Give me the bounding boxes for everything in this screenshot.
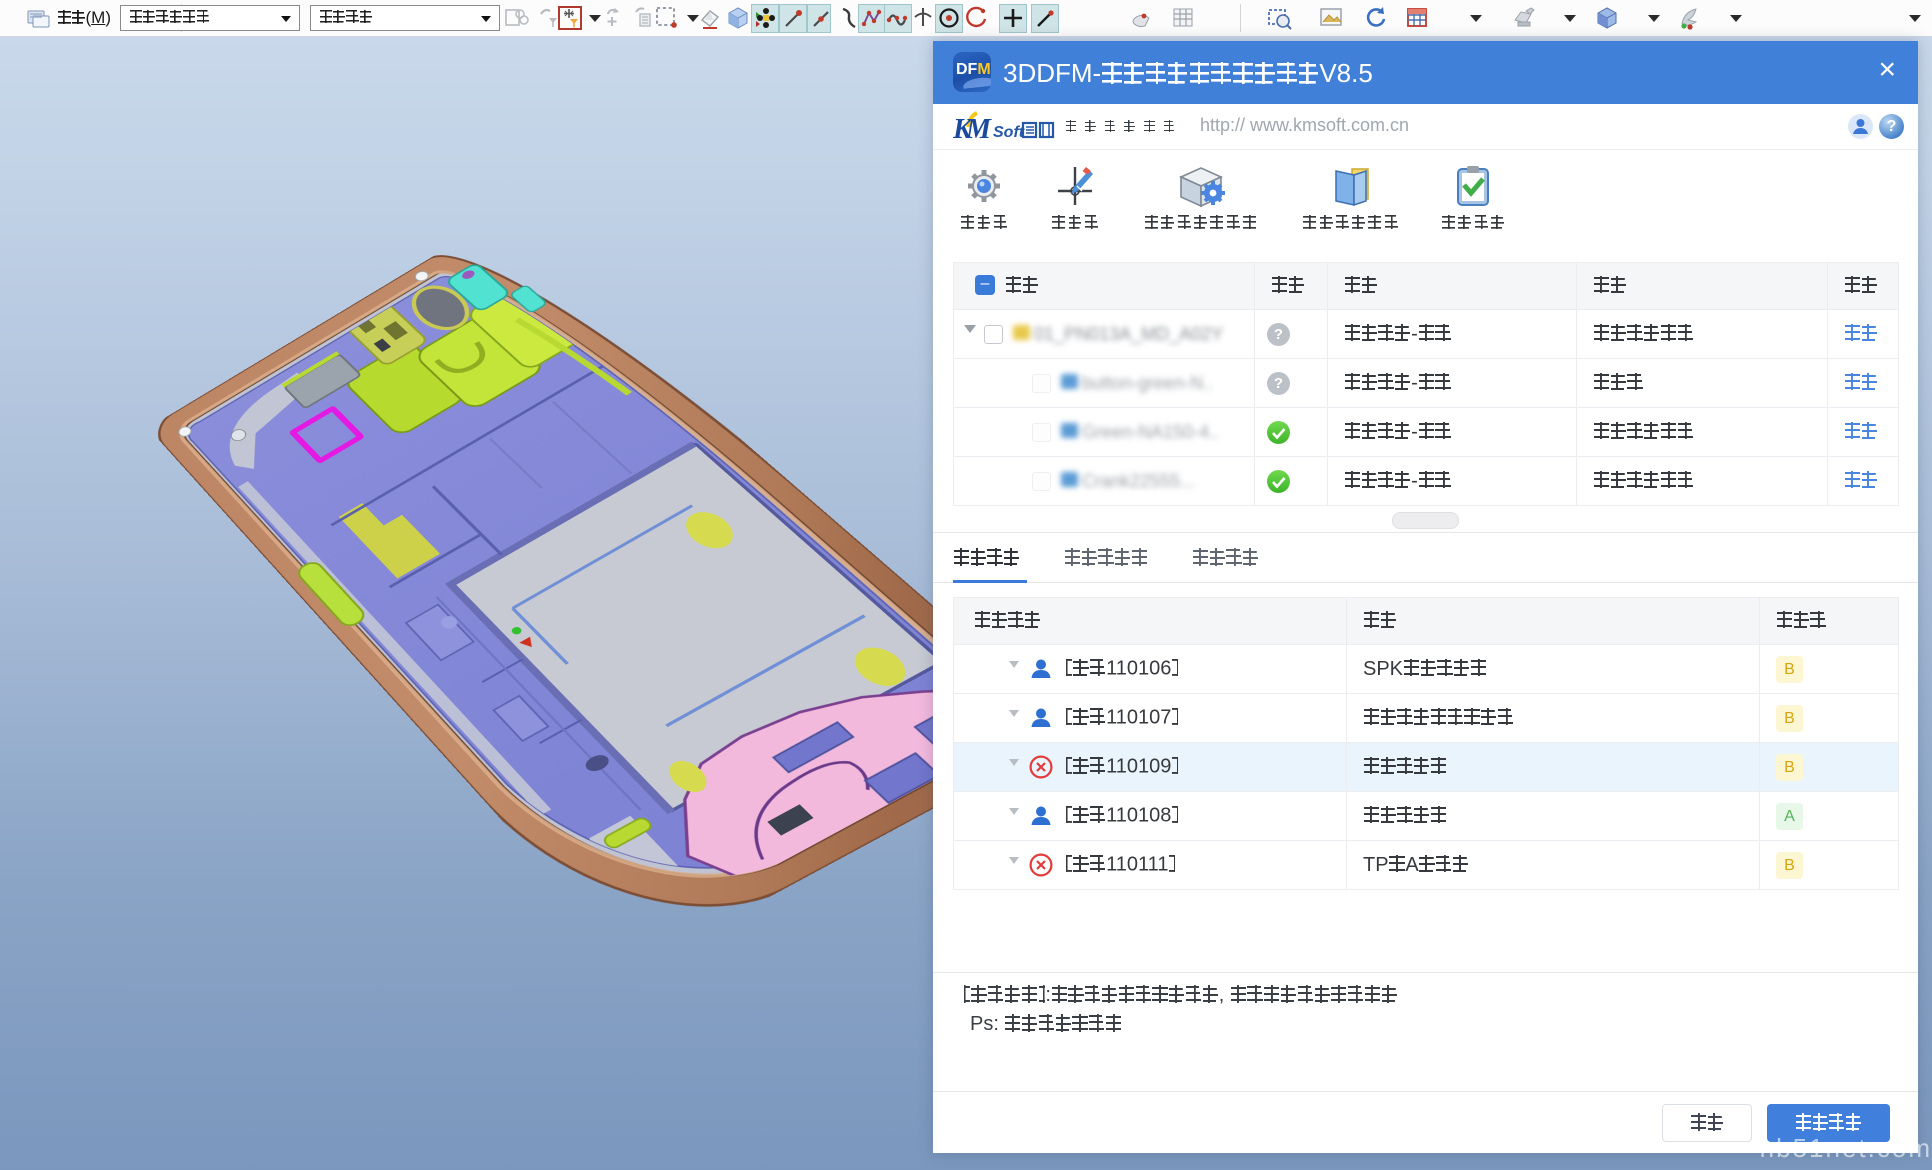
svg-text:M: M (965, 114, 992, 145)
svg-text:Soft: Soft (993, 124, 1025, 141)
